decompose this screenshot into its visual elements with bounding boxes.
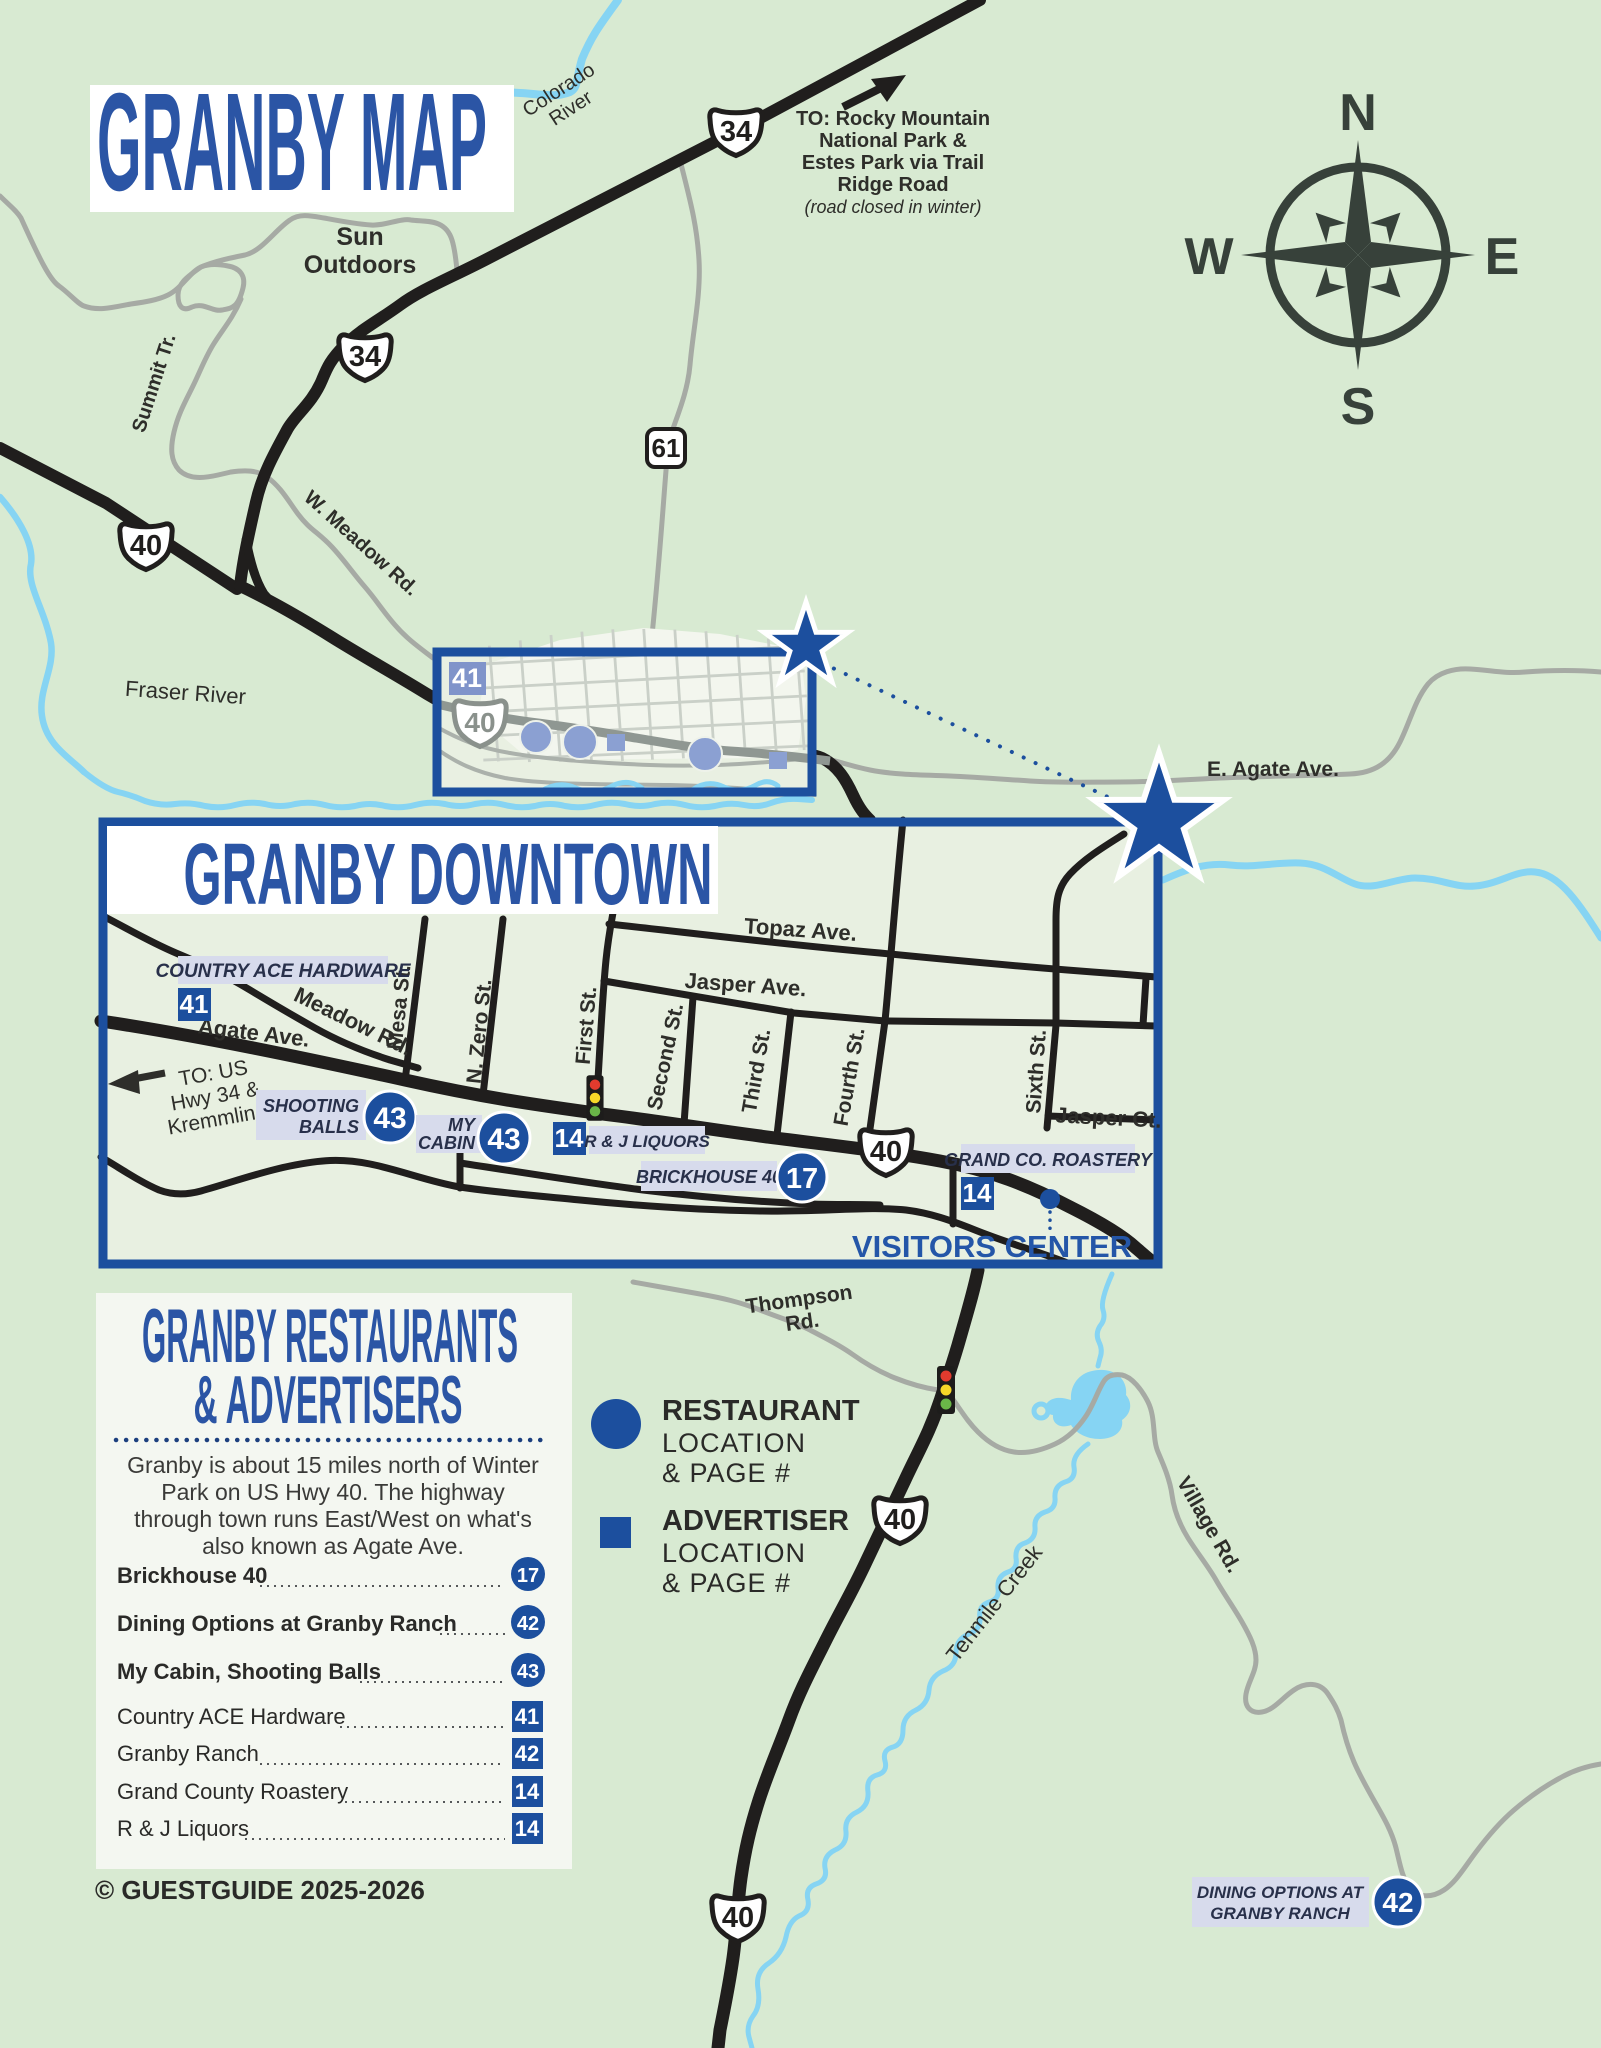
- svg-text:Rd.: Rd.: [784, 1309, 821, 1336]
- svg-text:BRICKHOUSE 40: BRICKHOUSE 40: [636, 1167, 782, 1187]
- svg-text:VISITORS CENTER: VISITORS CENTER: [852, 1229, 1132, 1264]
- svg-text:GRANBY MAP: GRANBY MAP: [97, 64, 487, 220]
- svg-text:43: 43: [487, 1123, 520, 1156]
- svg-text:& PAGE #: & PAGE #: [662, 1568, 791, 1598]
- svg-text:40: 40: [722, 1902, 754, 1934]
- svg-text:W: W: [1184, 228, 1234, 286]
- svg-text:14: 14: [963, 1178, 992, 1208]
- svg-text:National Park &: National Park &: [819, 130, 967, 152]
- svg-text:ADVERTISER: ADVERTISER: [662, 1505, 849, 1537]
- svg-text:40: 40: [884, 1504, 916, 1536]
- svg-text:E: E: [1485, 228, 1520, 286]
- svg-text:41: 41: [452, 663, 482, 693]
- svg-text:34: 34: [720, 116, 752, 148]
- svg-text:R & J Liquors: R & J Liquors: [117, 1816, 249, 1841]
- svg-text:Ridge Road: Ridge Road: [837, 174, 948, 196]
- svg-text:14: 14: [515, 1779, 540, 1804]
- svg-text:Park on US Hwy 40. The highway: Park on US Hwy 40. The highway: [161, 1479, 505, 1505]
- svg-text:CABIN: CABIN: [418, 1133, 476, 1153]
- svg-text:42: 42: [1382, 1887, 1413, 1918]
- svg-text:34: 34: [349, 341, 381, 373]
- svg-text:GRAND CO. ROASTERY: GRAND CO. ROASTERY: [944, 1150, 1154, 1170]
- svg-text:40: 40: [464, 707, 495, 738]
- svg-text:LOCATION: LOCATION: [662, 1428, 806, 1458]
- svg-text:My Cabin, Shooting Balls: My Cabin, Shooting Balls: [117, 1659, 381, 1684]
- svg-text:41: 41: [180, 989, 209, 1019]
- svg-text:SHOOTING: SHOOTING: [263, 1096, 359, 1116]
- svg-text:Dining Options at Granby Ranch: Dining Options at Granby Ranch: [117, 1611, 457, 1636]
- svg-text:42: 42: [515, 1741, 539, 1766]
- svg-text:Sun: Sun: [336, 223, 383, 251]
- svg-text:© GUESTGUIDE 2025-2026: © GUESTGUIDE 2025-2026: [95, 1875, 425, 1905]
- svg-text:61: 61: [652, 433, 681, 463]
- svg-text:Outdoors: Outdoors: [304, 251, 417, 279]
- svg-text:14: 14: [555, 1123, 584, 1153]
- svg-text:BALLS: BALLS: [299, 1117, 359, 1137]
- svg-text:17: 17: [517, 1565, 539, 1587]
- svg-text:14: 14: [515, 1816, 540, 1841]
- svg-text:Brickhouse 40: Brickhouse 40: [117, 1563, 267, 1588]
- svg-text:E. Agate Ave.: E. Agate Ave.: [1207, 758, 1339, 781]
- svg-text:RESTAURANT: RESTAURANT: [662, 1395, 860, 1427]
- svg-text:through town runs East/West on: through town runs East/West on what's: [134, 1506, 532, 1532]
- svg-text:43: 43: [517, 1661, 539, 1683]
- svg-text:MY: MY: [448, 1115, 477, 1135]
- svg-text:N: N: [1339, 84, 1377, 142]
- svg-text:R & J LIQUORS: R & J LIQUORS: [584, 1132, 710, 1151]
- svg-text:Grand County Roastery: Grand County Roastery: [117, 1779, 348, 1804]
- svg-text:41: 41: [515, 1704, 539, 1729]
- svg-text:S: S: [1341, 378, 1376, 436]
- svg-text:40: 40: [130, 530, 162, 562]
- svg-text:42: 42: [517, 1613, 539, 1635]
- svg-text:GRANBY RANCH: GRANBY RANCH: [1210, 1904, 1350, 1923]
- svg-text:17: 17: [786, 1163, 818, 1195]
- svg-text:COUNTRY ACE HARDWARE: COUNTRY ACE HARDWARE: [155, 961, 411, 982]
- svg-text:& PAGE #: & PAGE #: [662, 1458, 791, 1488]
- svg-text:DINING OPTIONS AT: DINING OPTIONS AT: [1197, 1883, 1365, 1902]
- svg-text:LOCATION: LOCATION: [662, 1538, 806, 1568]
- svg-text:TO: Rocky Mountain: TO: Rocky Mountain: [796, 108, 990, 130]
- svg-text:GRANBY DOWNTOWN: GRANBY DOWNTOWN: [184, 826, 713, 923]
- svg-text:Granby Ranch: Granby Ranch: [117, 1741, 259, 1766]
- svg-text:also known as Agate Ave.: also known as Agate Ave.: [202, 1533, 464, 1559]
- svg-text:(road closed in winter): (road closed in winter): [804, 197, 981, 217]
- svg-text:Granby is about 15 miles north: Granby is about 15 miles north of Winter: [127, 1452, 539, 1478]
- svg-text:& ADVERTISERS: & ADVERTISERS: [193, 1362, 462, 1438]
- svg-text:43: 43: [373, 1102, 406, 1135]
- svg-text:Country ACE Hardware: Country ACE Hardware: [117, 1704, 346, 1729]
- svg-text:40: 40: [870, 1136, 902, 1168]
- svg-text:Estes Park via Trail: Estes Park via Trail: [802, 152, 984, 174]
